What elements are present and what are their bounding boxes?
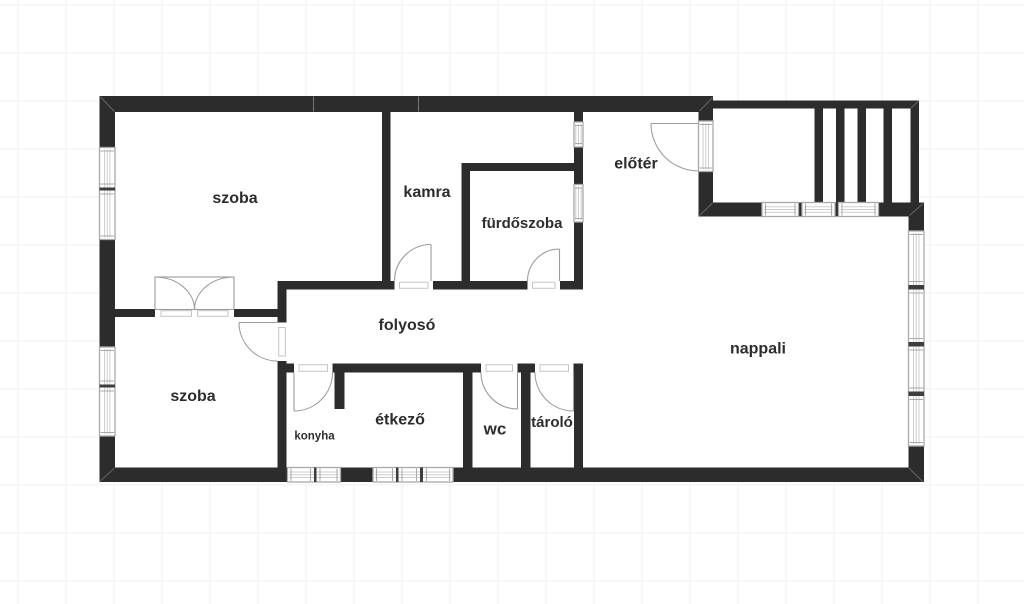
svg-text:kamra: kamra [403, 184, 450, 201]
svg-text:szoba: szoba [212, 190, 257, 207]
svg-text:folyosó: folyosó [379, 317, 436, 334]
svg-text:wc: wc [483, 420, 507, 439]
svg-text:szoba: szoba [170, 388, 215, 405]
svg-text:nappali: nappali [730, 341, 786, 358]
svg-text:fürdőszoba: fürdőszoba [482, 215, 563, 232]
svg-text:konyha: konyha [294, 431, 335, 443]
svg-text:tároló: tároló [531, 414, 573, 431]
svg-text:étkező: étkező [375, 412, 425, 429]
svg-text:előtér: előtér [614, 156, 658, 173]
